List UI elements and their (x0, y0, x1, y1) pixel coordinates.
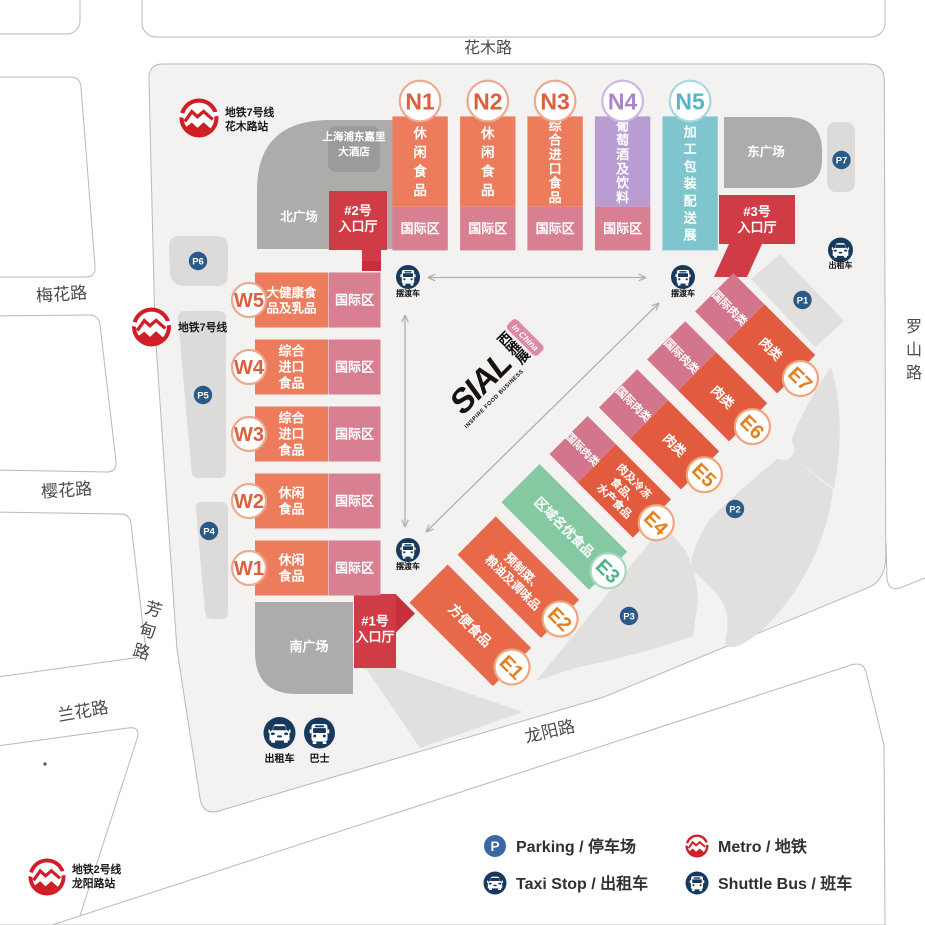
svg-text:罗: 罗 (906, 318, 922, 336)
svg-text:食: 食 (413, 163, 427, 179)
svg-text:Metro / 地铁: Metro / 地铁 (718, 837, 807, 856)
svg-text:进口: 进口 (278, 427, 304, 442)
svg-text:展: 展 (684, 228, 698, 243)
svg-text:P4: P4 (203, 526, 215, 537)
svg-text:路: 路 (906, 364, 922, 382)
svg-text:上海浦东嘉里: 上海浦东嘉里 (323, 130, 386, 143)
svg-text:Shuttle Bus / 班车: Shuttle Bus / 班车 (718, 874, 852, 893)
svg-text:巴士: 巴士 (310, 752, 330, 765)
svg-text:食: 食 (549, 176, 563, 191)
svg-text:国际区: 国际区 (536, 221, 575, 236)
svg-text:地铁7号线: 地铁7号线 (178, 320, 227, 334)
svg-text:国际区: 国际区 (335, 427, 374, 442)
svg-text:W3: W3 (234, 424, 264, 446)
svg-text:综合: 综合 (278, 411, 305, 426)
svg-text:口: 口 (549, 161, 562, 176)
svg-text:料: 料 (616, 190, 629, 205)
svg-text:入口厅: 入口厅 (338, 219, 377, 234)
svg-text:N5: N5 (675, 88, 705, 114)
svg-text:综合: 综合 (278, 344, 305, 359)
svg-text:进: 进 (549, 147, 562, 162)
svg-text:进口: 进口 (278, 360, 304, 375)
svg-text:出租车: 出租车 (829, 260, 853, 270)
svg-text:酒: 酒 (616, 147, 629, 162)
svg-text:闲: 闲 (481, 145, 495, 160)
svg-text:大酒店: 大酒店 (338, 145, 370, 158)
svg-text:P5: P5 (197, 390, 209, 401)
svg-text:合: 合 (549, 133, 563, 148)
svg-text:花木路站: 花木路站 (225, 119, 268, 133)
svg-text:地铁7号线: 地铁7号线 (225, 105, 274, 119)
svg-text:国际区: 国际区 (468, 221, 507, 236)
svg-text:装: 装 (683, 176, 697, 191)
svg-text:#1号: #1号 (361, 614, 388, 629)
svg-text:P3: P3 (623, 611, 635, 622)
svg-text:萄: 萄 (616, 133, 629, 148)
svg-text:N1: N1 (405, 88, 435, 114)
svg-text:及: 及 (616, 161, 630, 176)
svg-text:大健康食: 大健康食 (266, 285, 317, 300)
svg-text:食品: 食品 (278, 376, 304, 391)
svg-text:送: 送 (683, 210, 698, 225)
svg-text:地铁2号线: 地铁2号线 (72, 862, 121, 876)
svg-text:龙阳路站: 龙阳路站 (71, 876, 115, 890)
svg-text:食品: 食品 (278, 569, 304, 584)
svg-text:北广场: 北广场 (280, 209, 318, 224)
svg-text:Parking / 停车场: Parking / 停车场 (516, 837, 636, 856)
svg-text:W4: W4 (234, 357, 265, 379)
svg-text:食: 食 (481, 163, 495, 179)
svg-text:国际区: 国际区 (401, 221, 440, 236)
svg-text:#2号: #2号 (344, 203, 371, 218)
svg-text:P: P (490, 839, 499, 854)
svg-text:N3: N3 (540, 88, 569, 114)
svg-text:P2: P2 (729, 504, 741, 515)
svg-text:P1: P1 (797, 295, 809, 306)
svg-text:W1: W1 (234, 558, 264, 580)
svg-text:国际区: 国际区 (335, 293, 374, 308)
svg-text:品: 品 (413, 183, 427, 198)
svg-text:食品: 食品 (278, 502, 304, 517)
svg-text:国际区: 国际区 (335, 494, 374, 509)
svg-text:饮: 饮 (615, 176, 630, 191)
svg-text:食品: 食品 (278, 443, 304, 458)
svg-text:N2: N2 (473, 88, 502, 114)
svg-text:#3号: #3号 (743, 204, 770, 219)
svg-text:品及乳品: 品及乳品 (266, 300, 316, 315)
svg-text:配: 配 (684, 193, 697, 208)
svg-text:梅花路: 梅花路 (36, 283, 88, 306)
svg-text:入口厅: 入口厅 (737, 220, 776, 235)
svg-text:樱花路: 樱花路 (41, 479, 93, 502)
svg-text:摆渡车: 摆渡车 (396, 561, 420, 571)
svg-text:休: 休 (480, 125, 495, 141)
svg-text:P7: P7 (836, 155, 848, 166)
svg-text:出租车: 出租车 (265, 752, 295, 765)
svg-text:国际区: 国际区 (603, 221, 642, 236)
svg-text:W5: W5 (234, 290, 264, 312)
svg-text:摆渡车: 摆渡车 (671, 288, 695, 298)
svg-text:南广场: 南广场 (289, 639, 328, 654)
svg-text:包: 包 (684, 159, 697, 174)
svg-text:山: 山 (906, 341, 922, 359)
svg-text:国际区: 国际区 (335, 561, 374, 576)
svg-text:休: 休 (412, 125, 427, 141)
svg-text:加: 加 (683, 124, 697, 139)
svg-text:N4: N4 (608, 88, 638, 114)
svg-text:工: 工 (684, 142, 697, 157)
svg-text:休闲: 休闲 (277, 486, 304, 501)
svg-text:休闲: 休闲 (277, 553, 304, 568)
svg-text:闲: 闲 (413, 145, 427, 160)
svg-text:Taxi Stop / 出租车: Taxi Stop / 出租车 (516, 874, 648, 893)
svg-text:W2: W2 (234, 491, 264, 513)
svg-text:P6: P6 (192, 256, 204, 267)
svg-text:品: 品 (481, 183, 495, 198)
svg-text:摆渡车: 摆渡车 (396, 288, 420, 298)
svg-text:东广场: 东广场 (747, 144, 785, 159)
svg-text:国际区: 国际区 (335, 360, 374, 375)
svg-text:入口厅: 入口厅 (355, 630, 394, 645)
svg-text:花木路: 花木路 (464, 39, 512, 57)
svg-text:品: 品 (549, 190, 562, 205)
